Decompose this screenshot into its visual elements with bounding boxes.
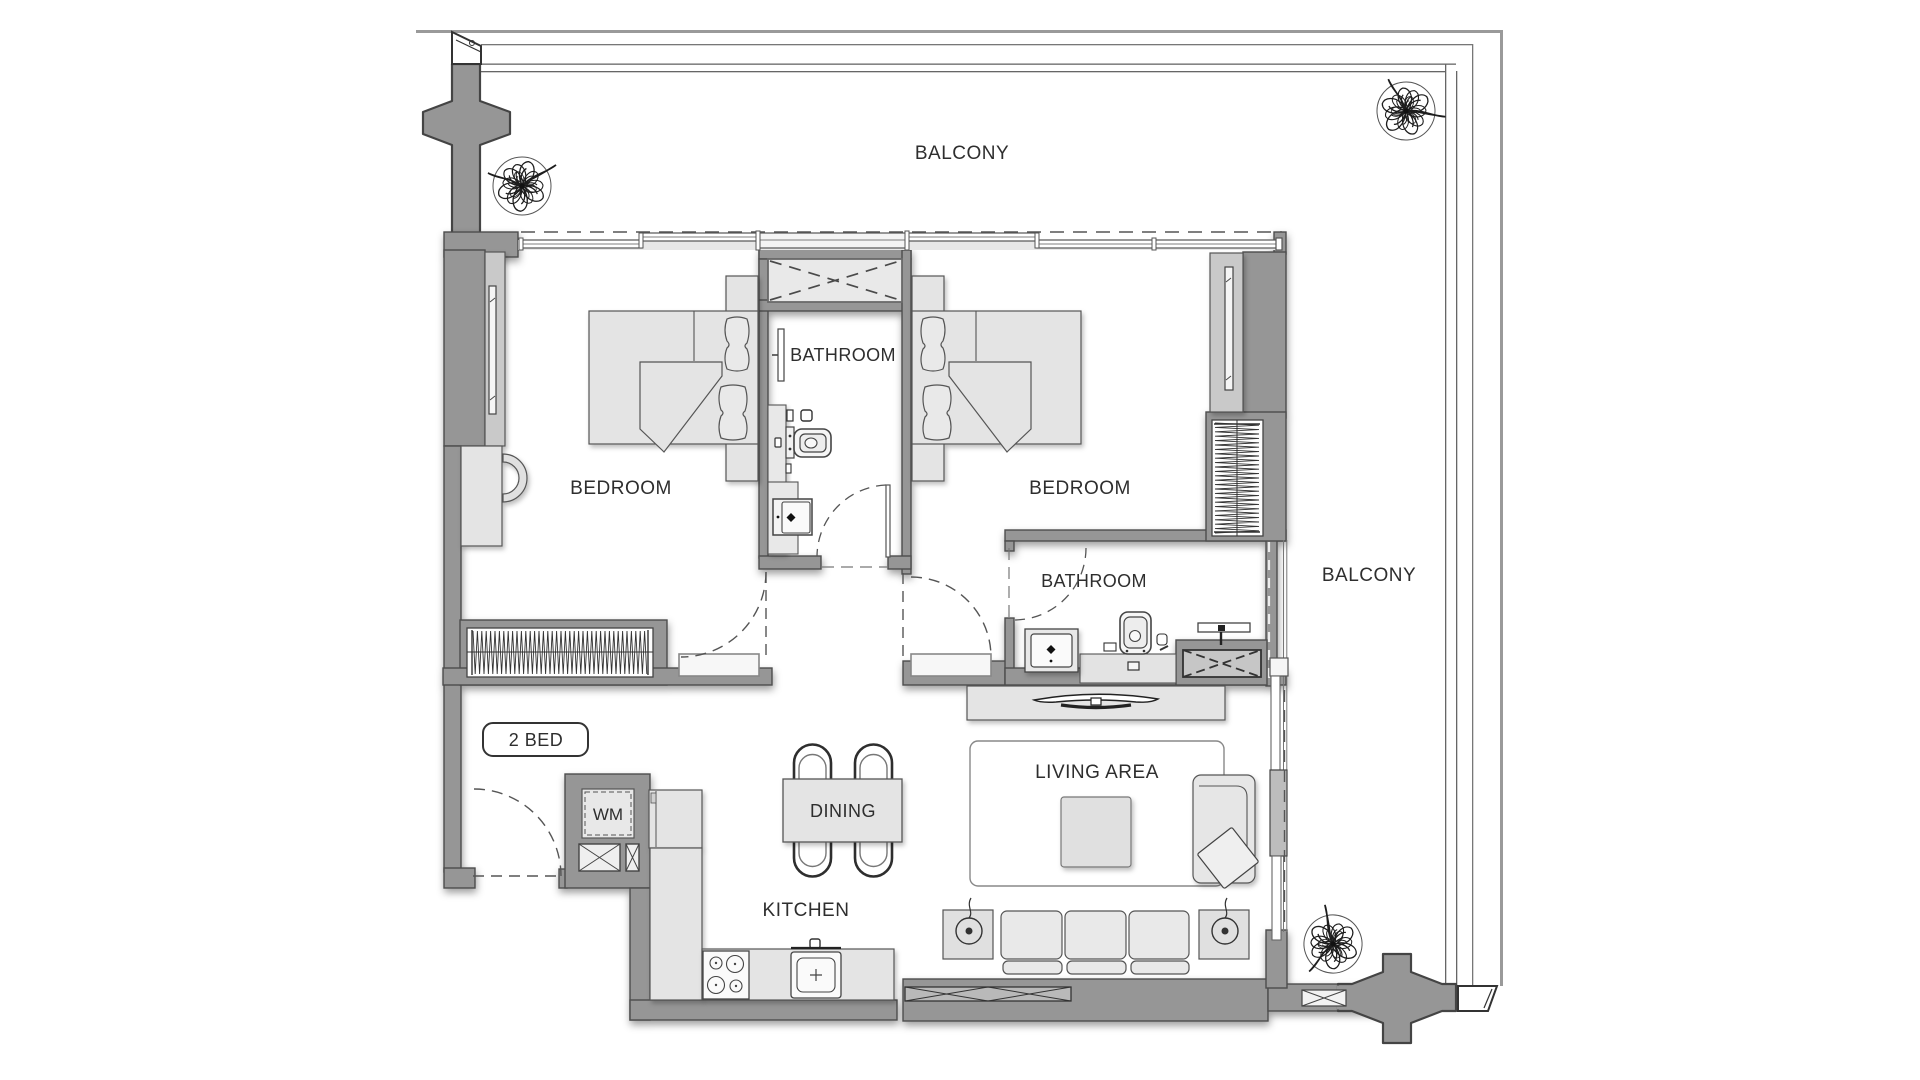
svg-text:BALCONY: BALCONY	[1322, 565, 1416, 586]
svg-text:2 BED: 2 BED	[509, 730, 564, 750]
svg-text:BEDROOM: BEDROOM	[570, 478, 672, 499]
svg-text:WM: WM	[593, 805, 623, 824]
svg-text:DINING: DINING	[810, 801, 876, 821]
svg-text:BEDROOM: BEDROOM	[1029, 478, 1131, 499]
svg-text:BATHROOM: BATHROOM	[790, 345, 896, 365]
svg-text:LIVING AREA: LIVING AREA	[1035, 762, 1159, 783]
svg-text:BALCONY: BALCONY	[915, 143, 1009, 164]
svg-text:KITCHEN: KITCHEN	[763, 900, 850, 921]
svg-text:BATHROOM: BATHROOM	[1041, 571, 1147, 591]
